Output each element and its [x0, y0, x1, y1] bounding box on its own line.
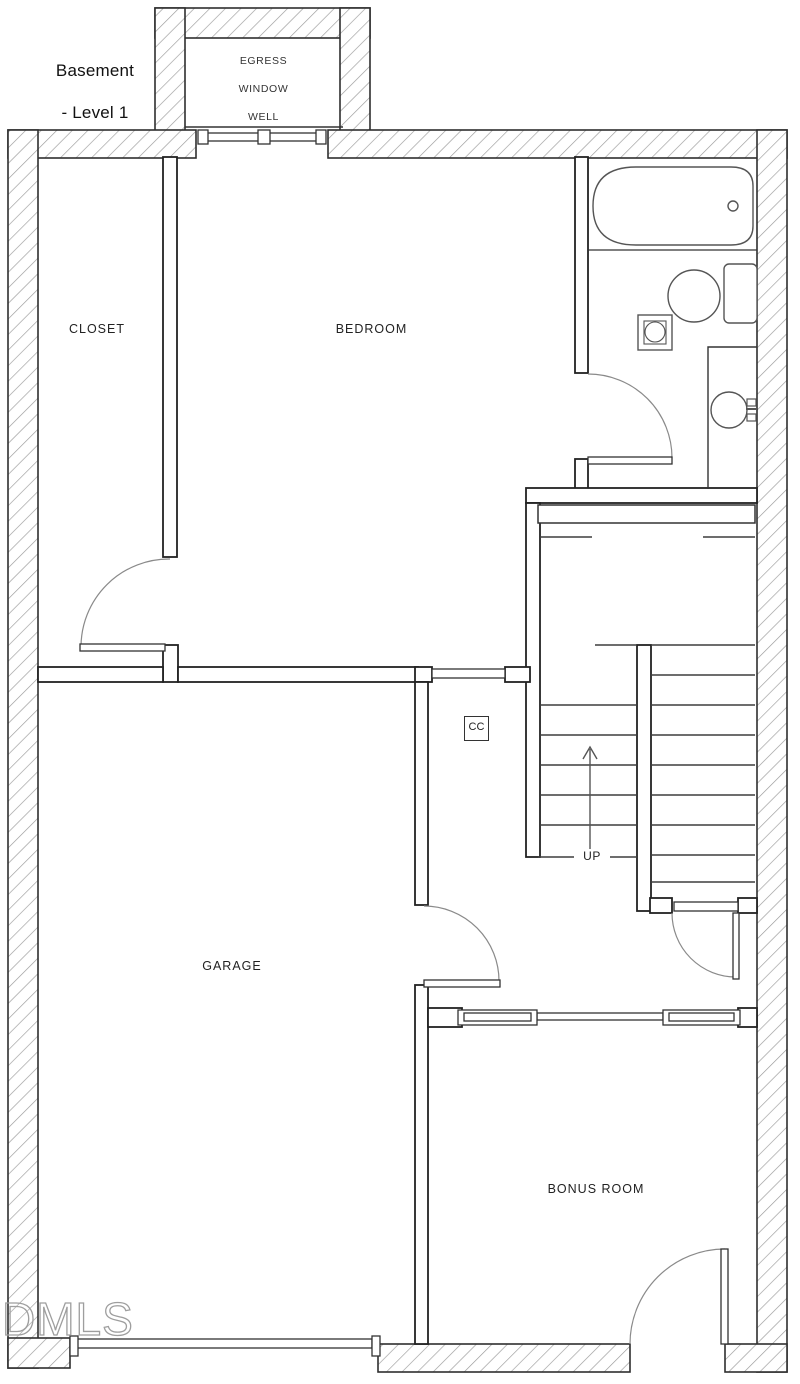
bonus-exterior-door: [630, 1249, 728, 1344]
room-label-closet: CLOSET: [37, 322, 157, 336]
closet-east-wall: [163, 157, 177, 557]
plan-title-line2: - Level 1: [61, 103, 128, 122]
bathroom-door-leaf: [588, 457, 672, 464]
room-label-bedroom: BEDROOM: [309, 322, 434, 336]
plan-title: Basement - Level 1: [28, 60, 162, 123]
room-label-garage: GARAGE: [172, 959, 292, 973]
closet-door-swing-arc: [81, 559, 170, 647]
up-direction-arrow: [583, 747, 597, 855]
faucet-icon: [746, 399, 757, 421]
bedroom-south-wall-east: [178, 667, 418, 682]
stair-hall-bonus-door-swing-arc: [672, 913, 736, 977]
hall-opening-jamb-left: [415, 667, 432, 682]
bedroom-south-wall-west: [38, 667, 163, 682]
stair-hall-bonus-door: [672, 913, 739, 979]
floor-plan-drawing: [0, 0, 800, 1384]
sink-icon: [711, 392, 747, 428]
wall-well-top: [155, 8, 370, 38]
wall-top-right: [328, 130, 787, 158]
wall-left: [8, 130, 38, 1368]
garage-east-wall-upper: [415, 682, 428, 905]
stair-treads-right-run: [651, 645, 755, 882]
closet-door-leaf: [80, 644, 165, 651]
plan-title-line1: Basement: [56, 61, 134, 80]
mls-watermark: DMLS: [2, 1292, 134, 1346]
floor-drain-circle: [645, 322, 665, 342]
bathroom-door-swing-arc: [588, 374, 672, 458]
interior-window-2-sash: [669, 1013, 734, 1021]
cc-marker-box: CC: [464, 716, 489, 741]
wall-right: [757, 130, 787, 1372]
garage-hall-door-leaf: [424, 980, 500, 987]
interior-window-connector: [537, 1013, 663, 1020]
stair-landing: [538, 505, 755, 523]
cc-marker-text: CC: [469, 721, 485, 733]
egress-window-mullion-right: [316, 130, 326, 144]
stairs-up-label: UP: [574, 849, 610, 863]
garage-east-wall-lower: [415, 985, 428, 1344]
bonus-exterior-door-swing-arc: [630, 1249, 725, 1344]
egress-window-mullion-left: [198, 130, 208, 144]
garage-door-cap-right: [372, 1336, 380, 1356]
floor-plan: Basement - Level 1 EGRESS WINDOW WELL CL…: [0, 0, 800, 1384]
egress-window-well-label: EGRESS WINDOW WELL: [187, 54, 340, 124]
bathroom-west-wall-stub: [575, 459, 588, 489]
wall-bottom-right-block: [725, 1344, 787, 1372]
bonus-north-wall-east-stub: [738, 1008, 757, 1027]
toilet-tank-icon: [724, 264, 757, 323]
stair-hall-bonus-door-leaf: [733, 913, 739, 979]
bonus-north-wall-west-stub: [428, 1008, 462, 1027]
windows: [185, 127, 740, 1025]
bathtub-drain-icon: [728, 201, 738, 211]
stair-door-jamb-left: [650, 898, 672, 913]
interior-window-1-sash: [464, 1013, 531, 1021]
closet-door: [80, 559, 170, 651]
garage-hall-door: [424, 906, 500, 987]
wall-well-right: [340, 8, 370, 134]
stair-door-jamb-right: [738, 898, 757, 913]
stair-hall-door-header: [674, 902, 738, 911]
bathroom-door: [588, 374, 672, 464]
bathroom-south-wall: [526, 488, 757, 503]
hall-opening-jamb-right: [505, 667, 530, 682]
room-label-bonus-room: BONUS ROOM: [512, 1182, 680, 1196]
bonus-exterior-door-leaf: [721, 1249, 728, 1344]
garage-hall-door-swing-arc: [424, 906, 499, 981]
bathroom-west-wall: [575, 157, 588, 373]
egress-window-mullion-center: [258, 130, 270, 144]
wall-bottom-middle: [378, 1344, 630, 1372]
toilet-bowl-icon: [668, 270, 720, 322]
bedroom-hall-cased-opening: [432, 669, 505, 678]
bathroom-fixtures: [588, 167, 757, 489]
stair-center-divider: [637, 645, 651, 911]
